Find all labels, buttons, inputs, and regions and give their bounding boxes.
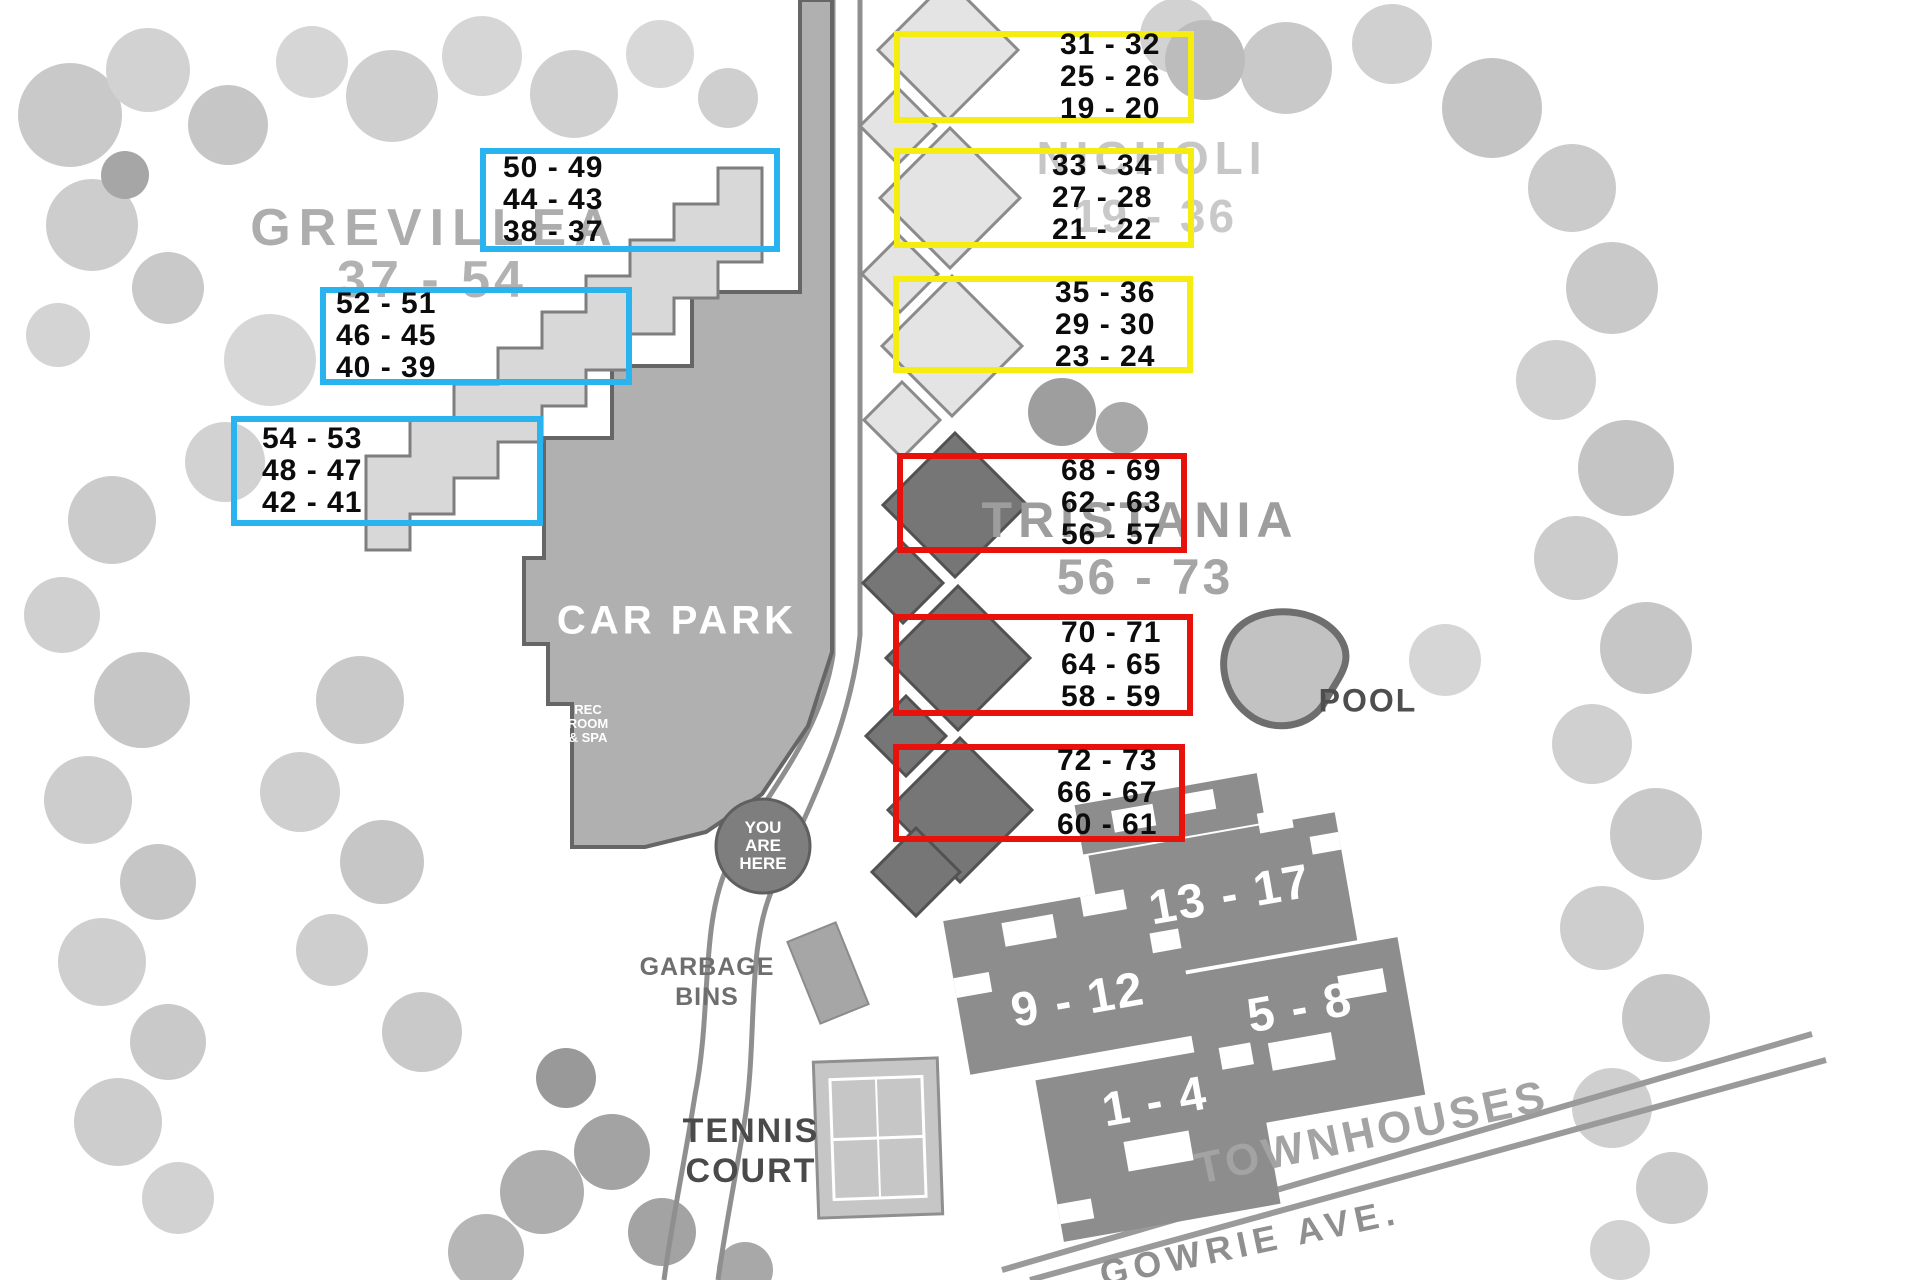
complex-range-tristania: 56 - 73 bbox=[1057, 548, 1234, 606]
unit-range: 23 - 24 bbox=[1055, 341, 1155, 373]
unit-range: 27 - 28 bbox=[1052, 182, 1152, 214]
unit-range: 29 - 30 bbox=[1055, 309, 1155, 341]
unit-range: 19 - 20 bbox=[1060, 93, 1160, 125]
tennis-court-shape bbox=[813, 1058, 942, 1218]
unit-box-nicholi-1[interactable]: 31 - 32 25 - 26 19 - 20 bbox=[894, 31, 1194, 123]
unit-range: 40 - 39 bbox=[336, 352, 436, 384]
unit-box-tristania-3[interactable]: 72 - 73 66 - 67 60 - 61 bbox=[893, 744, 1185, 842]
car-park-label: CAR PARK bbox=[557, 599, 797, 644]
unit-box-tristania-2[interactable]: 70 - 71 64 - 65 58 - 59 bbox=[893, 614, 1193, 716]
unit-range: 46 - 45 bbox=[336, 320, 436, 352]
unit-box-grevillea-2[interactable]: 52 - 51 46 - 45 40 - 39 bbox=[320, 287, 632, 385]
unit-range: 44 - 43 bbox=[503, 184, 603, 216]
unit-range: 33 - 34 bbox=[1052, 150, 1152, 182]
unit-range: 66 - 67 bbox=[1057, 777, 1157, 809]
unit-range: 38 - 37 bbox=[503, 216, 603, 248]
unit-box-grevillea-3[interactable]: 54 - 53 48 - 47 42 - 41 bbox=[231, 416, 543, 526]
unit-range: 35 - 36 bbox=[1055, 277, 1155, 309]
rec-room-spa-label: REC ROOM & SPA bbox=[568, 703, 608, 745]
unit-box-nicholi-3[interactable]: 35 - 36 29 - 30 23 - 24 bbox=[893, 276, 1193, 373]
unit-box-tristania-1[interactable]: 68 - 69 62 - 63 56 - 57 bbox=[897, 453, 1187, 553]
resort-site-map: GREVILLEA 37 - 54 NICHOLI 19 - 36 TRISTA… bbox=[0, 0, 1920, 1280]
unit-range: 58 - 59 bbox=[1061, 681, 1161, 713]
unit-range: 72 - 73 bbox=[1057, 745, 1157, 777]
unit-range: 54 - 53 bbox=[262, 423, 362, 455]
unit-range: 42 - 41 bbox=[262, 487, 362, 519]
unit-range: 52 - 51 bbox=[336, 288, 436, 320]
unit-range: 21 - 22 bbox=[1052, 214, 1152, 246]
unit-range: 68 - 69 bbox=[1061, 455, 1161, 487]
unit-range: 56 - 57 bbox=[1061, 519, 1161, 551]
unit-range: 60 - 61 bbox=[1057, 809, 1157, 841]
garbage-bins-shape bbox=[787, 922, 868, 1023]
unit-range: 70 - 71 bbox=[1061, 617, 1161, 649]
unit-range: 48 - 47 bbox=[262, 455, 362, 487]
unit-box-grevillea-1[interactable]: 50 - 49 44 - 43 38 - 37 bbox=[480, 148, 780, 252]
unit-range: 64 - 65 bbox=[1061, 649, 1161, 681]
pool-label: POOL bbox=[1319, 683, 1418, 720]
unit-range: 62 - 63 bbox=[1061, 487, 1161, 519]
tennis-court-label: TENNIS COURT bbox=[683, 1111, 820, 1191]
you-are-here-label: YOU ARE HERE bbox=[739, 819, 786, 873]
unit-box-nicholi-2[interactable]: 33 - 34 27 - 28 21 - 22 bbox=[894, 148, 1194, 248]
unit-range: 25 - 26 bbox=[1060, 61, 1160, 93]
garbage-bins-label: GARBAGE BINS bbox=[640, 952, 775, 1012]
unit-range: 50 - 49 bbox=[503, 152, 603, 184]
unit-range: 31 - 32 bbox=[1060, 29, 1160, 61]
